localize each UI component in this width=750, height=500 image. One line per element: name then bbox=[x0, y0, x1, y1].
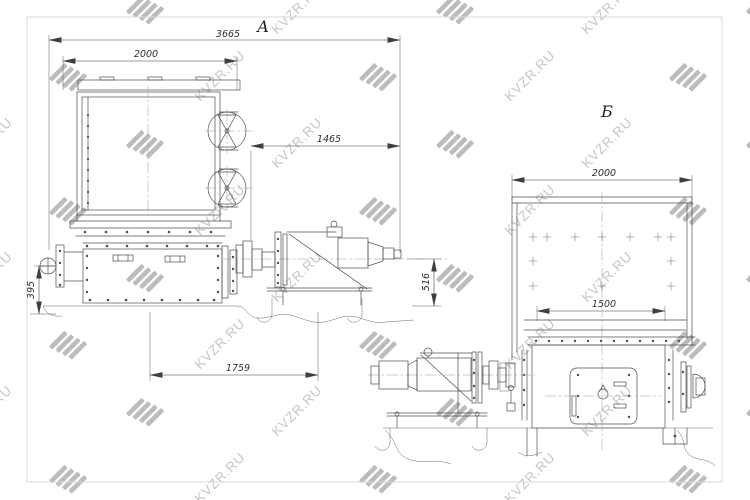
watermark-text: KVZR.RU bbox=[269, 0, 325, 37]
watermark-text: KVZR.RU bbox=[579, 115, 635, 171]
watermark-logo-icon bbox=[746, 0, 750, 29]
watermark-logo-icon bbox=[126, 393, 164, 431]
watermark-text: KVZR.RU bbox=[269, 383, 325, 439]
watermark-text: KVZR.RU bbox=[502, 450, 558, 500]
watermark-text: KVZR.RU bbox=[0, 115, 15, 171]
watermark-logo-icon bbox=[436, 0, 474, 29]
watermark-logo-icon bbox=[359, 460, 397, 498]
watermark-logo-icon bbox=[746, 125, 750, 163]
watermark-logo-icon bbox=[359, 58, 397, 96]
watermark-logo-icon bbox=[49, 460, 87, 498]
watermark-logo-icon bbox=[746, 393, 750, 431]
dim-label-1759: 1759 bbox=[226, 363, 250, 374]
watermark-text: KVZR.RU bbox=[502, 316, 558, 372]
machine-a-fan-top bbox=[205, 109, 252, 153]
dim-label-1500: 1500 bbox=[592, 299, 616, 310]
watermark-logo-icon bbox=[126, 125, 164, 163]
watermark-logo-icon bbox=[49, 326, 87, 364]
watermark-logo-icon bbox=[436, 259, 474, 297]
machine-b-body bbox=[507, 337, 705, 456]
watermark-text: KVZR.RU bbox=[269, 249, 325, 305]
watermark-logo-icon bbox=[669, 192, 707, 230]
dim-label-395: 395 bbox=[26, 281, 37, 299]
machine-a-housing bbox=[77, 77, 240, 221]
watermark-text: KVZR.RU bbox=[192, 450, 248, 500]
watermark-logo-icon bbox=[126, 259, 164, 297]
dim-label-2000-b: 2000 bbox=[592, 168, 616, 179]
page: KVZR.RUKVZR.RUKVZR.RUKVZR.RUKVZR.RUKVZR.… bbox=[0, 0, 750, 500]
watermark-text: KVZR.RU bbox=[502, 48, 558, 104]
watermark-logo-icon bbox=[359, 326, 397, 364]
watermark-text: KVZR.RU bbox=[0, 249, 15, 305]
dim-label-3665: 3665 bbox=[216, 29, 240, 40]
view-b-label: Б bbox=[600, 102, 613, 121]
dim-label-516: 516 bbox=[421, 273, 432, 291]
dim-label-1465: 1465 bbox=[317, 134, 341, 145]
machine-a-foundation bbox=[43, 298, 414, 323]
machine-a-drive bbox=[222, 221, 448, 305]
machine-a-body bbox=[40, 245, 237, 303]
watermark-logo-icon bbox=[49, 192, 87, 230]
engineering-drawing: KVZR.RUKVZR.RUKVZR.RUKVZR.RUKVZR.RUKVZR.… bbox=[0, 0, 750, 500]
watermark-logo-icon bbox=[746, 259, 750, 297]
watermark-text: KVZR.RU bbox=[579, 0, 635, 37]
watermark-logo-icon bbox=[126, 0, 164, 29]
watermark-logo-icon bbox=[359, 192, 397, 230]
watermark-logo-icon bbox=[669, 58, 707, 96]
watermark-text: KVZR.RU bbox=[0, 0, 15, 37]
watermark-layer: KVZR.RUKVZR.RUKVZR.RUKVZR.RUKVZR.RUKVZR.… bbox=[0, 0, 750, 500]
watermark-logo-icon bbox=[49, 58, 87, 96]
watermark-text: KVZR.RU bbox=[0, 383, 15, 439]
watermark-logo-icon bbox=[436, 125, 474, 163]
dim-label-2000-a: 2000 bbox=[134, 49, 158, 60]
watermark-logo-icon bbox=[669, 460, 707, 498]
view-a-label: А bbox=[256, 17, 269, 36]
watermark-text: KVZR.RU bbox=[502, 182, 558, 238]
watermark-text: KVZR.RU bbox=[579, 249, 635, 305]
